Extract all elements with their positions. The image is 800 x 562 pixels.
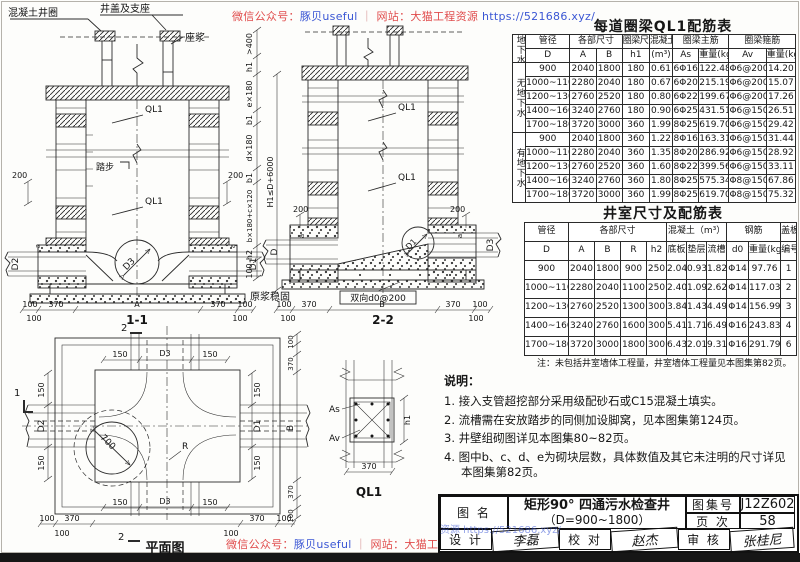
table-cell: 0.80	[649, 91, 672, 105]
table-cell: 2280	[569, 280, 595, 299]
dim-150: 150	[202, 498, 217, 507]
dim-100: 100	[26, 314, 41, 323]
table-cell: 2040	[570, 63, 596, 77]
table-cell: 3720	[569, 337, 595, 356]
table-cell: 0.61	[649, 63, 672, 77]
table-cell: Φ6@200	[729, 77, 766, 91]
table-cell: 3240	[570, 105, 596, 119]
table-row: 有地下水900204018003601.228Φ16163.31Φ6@15031…	[513, 133, 796, 147]
table-cell: Φ8@150	[729, 189, 766, 203]
dim-370: 370	[249, 514, 264, 523]
table-cell: 1.99	[649, 119, 672, 133]
dim-200: 200	[228, 171, 243, 180]
table-cell: 3000	[596, 119, 622, 133]
table-cell: 9.31	[707, 337, 727, 356]
table-cell: 2760	[570, 91, 596, 105]
table-cell: 2.04	[667, 261, 687, 280]
table-cell: 360	[622, 133, 649, 147]
dim-100: 100	[54, 529, 69, 538]
table-cell: 26.51	[766, 105, 795, 119]
table-cell: 3240	[570, 175, 596, 189]
chamber-table-note: 注：未包括井室墙体工程量，井室墙体工程量见本图集第82页。	[537, 356, 791, 369]
table-cell: Φ14	[727, 261, 749, 280]
dim-h1: h1	[403, 415, 412, 425]
table-cell: 1800	[596, 63, 622, 77]
table-cell: 3720	[570, 189, 596, 203]
table-cell: 180	[622, 63, 649, 77]
table-cell: 8Φ22	[673, 161, 699, 175]
dim-d180: d×180	[245, 134, 254, 161]
header-cushion: 垫层	[687, 242, 707, 261]
header-As: As	[673, 49, 699, 63]
table-cell: 有地下水	[513, 133, 526, 203]
header-D: D	[526, 49, 570, 63]
header-B: B	[596, 49, 622, 63]
table-cell: 360	[622, 147, 649, 161]
label-ql1: QL1	[398, 103, 416, 113]
table-cell: 2760	[596, 175, 622, 189]
watermark-fragment: 资源 https://521686.xyz/	[440, 521, 561, 536]
header-R: R	[621, 242, 647, 261]
label-ql1: QL1	[145, 197, 163, 207]
table-row: 1000~1100228020403601.358Φ20286.92Φ6@150…	[513, 147, 796, 161]
header-ring-beam-size: 圈梁尺寸	[622, 35, 649, 49]
table-cell: 97.76	[749, 261, 781, 280]
table-cell: 2760	[570, 161, 596, 175]
dim-100: 100	[276, 514, 291, 523]
dim-100: 100	[472, 300, 487, 309]
table-cell: Φ6@150	[729, 147, 766, 161]
watermark-site-name: 大猫工程资源	[410, 10, 478, 23]
dim-370: 370	[301, 300, 316, 309]
table-cell: 360	[622, 175, 649, 189]
table-cell: 163.31	[699, 133, 729, 147]
dim-a: a	[456, 234, 464, 238]
header-D: D	[525, 242, 569, 261]
label-av-stirrup: Av	[329, 434, 341, 444]
table-cell: 2.62	[707, 280, 727, 299]
section-marker-1: 1	[14, 388, 20, 399]
dim-150: 150	[253, 382, 262, 397]
table-cell: 360	[622, 119, 649, 133]
check-signature: 赵杰	[610, 527, 678, 553]
table-header-row: 管径 各部尺寸 混凝土（m³） 钢筋 盖板	[525, 223, 797, 242]
watermark-site-label: 网站：	[371, 538, 405, 551]
watermark-wechat-label: 微信公众号：	[226, 538, 294, 551]
plan-view-drawing: 2 150 D3 150 150 D2 150 150	[14, 323, 310, 556]
table-cell: Φ6@150	[729, 133, 766, 147]
dim-100: 100	[276, 300, 291, 309]
table-cell: 6.49	[707, 318, 727, 337]
table-cell: 1.60	[649, 161, 672, 175]
table-cell: Φ6@200	[729, 63, 766, 77]
table-cell: 900	[526, 63, 570, 77]
table-cell: 2040	[596, 147, 622, 161]
table-cell: 1400~1600	[526, 175, 570, 189]
header-flow-channel: 流槽	[707, 242, 727, 261]
table-cell: 8Φ20	[673, 147, 699, 161]
section-1-1-drawing: 混凝土井圈 井盖及支座 座浆 QL1 QL1	[5, 2, 265, 327]
header-concrete: 混凝土（m³）	[667, 223, 727, 242]
note-item: 2. 流槽需在安放踏步的同侧加设脚窝，见本图集第124页。	[444, 413, 796, 429]
dim-100: 100	[232, 314, 247, 323]
scan-edge-bar	[0, 553, 800, 562]
header-weight: 重量(kg)	[699, 49, 729, 63]
dim-b180-c120: b×180+c×120	[246, 190, 254, 243]
table-cell: 1000~1100	[526, 77, 570, 91]
table-cell: 156.99	[749, 299, 781, 318]
table-cell: Φ16	[727, 337, 749, 356]
table-cell: 3000	[596, 189, 622, 203]
table-cell: 6.43	[667, 337, 687, 356]
table-cell: 3000	[595, 337, 621, 356]
table-cell: 1300	[621, 299, 647, 318]
dim-150: 150	[37, 455, 46, 470]
table-cell: Φ6@200	[729, 91, 766, 105]
table-cell: 3720	[570, 119, 596, 133]
table-cell: 180	[622, 105, 649, 119]
note-item: 3. 井壁组砌图详见本图集80~82页。	[444, 431, 796, 447]
notes-title: 说明：	[444, 372, 796, 389]
label-biaxial-rebar: 双向d0@200	[350, 292, 406, 304]
table-cell: 29.42	[766, 119, 795, 133]
label-steps: 踏步	[96, 161, 114, 173]
atlas-number-value: J12Z602	[740, 496, 795, 513]
label-concrete-ring: 混凝土井圈	[8, 6, 58, 19]
table-cell: 300	[647, 337, 667, 356]
chamber-table: 管径 各部尺寸 混凝土（m³） 钢筋 盖板 D A B R h2 底板 垫层 流…	[524, 222, 797, 356]
chamber-table-body: 管径 各部尺寸 混凝土（m³） 钢筋 盖板 D A B R h2 底板 垫层 流…	[525, 223, 797, 356]
table-row: 1200~13002760252013003003.841.434.49Φ141…	[525, 299, 797, 318]
table-cell: 2	[781, 280, 797, 299]
table-cell: 6	[781, 337, 797, 356]
header-h2: h2	[647, 242, 667, 261]
header-dimensions: 各部尺寸	[569, 223, 667, 242]
table-cell: 619.70	[699, 119, 729, 133]
table-cell: 117.03	[749, 280, 781, 299]
table-row: 无地下水900204018001800.616Φ16122.48Φ6@20014…	[513, 63, 796, 77]
dim-370: 370	[445, 300, 460, 309]
dim-100: 100	[39, 514, 54, 523]
table-row: 1400~16003240276016003005.411.716.49Φ162…	[525, 318, 797, 337]
header-B: B	[595, 242, 621, 261]
table-cell: 2.01	[687, 337, 707, 356]
table-row: 1400~1600324027603601.808Φ25575.34Φ8@150…	[513, 175, 796, 189]
watermark-wechat-label: 微信公众号：	[232, 10, 300, 23]
table-cell: 619.70	[699, 189, 729, 203]
table-cell: 6Φ22	[673, 91, 699, 105]
label-pipe-d2: D2	[11, 258, 21, 271]
table-cell: 900	[621, 261, 647, 280]
table-cell: 1800	[595, 261, 621, 280]
table-cell: 1200~1300	[526, 91, 570, 105]
table-cell: 3.84	[667, 299, 687, 318]
header-m3: (m³)	[649, 49, 672, 63]
header-steel: 钢筋	[727, 223, 781, 242]
dim-b1: b1	[245, 173, 254, 183]
table-cell: 75.32	[766, 189, 795, 203]
notes-section: 说明： 1. 接入支管超挖部分采用级配砂石或C15混凝土填实。2. 流槽需在安放…	[444, 372, 796, 484]
table-cell: 1100	[621, 280, 647, 299]
watermark-site-label: 网站：	[377, 10, 411, 23]
table-cell: 1700~1800	[525, 337, 569, 356]
table-cell: 1.09	[687, 280, 707, 299]
label-seat-mortar: 座浆	[185, 31, 205, 44]
table-cell: 215.19	[699, 77, 729, 91]
dim-370: 370	[287, 357, 295, 370]
table-cell: 2520	[595, 299, 621, 318]
dim-150: 150	[112, 350, 127, 359]
table-cell: 900	[525, 261, 569, 280]
dim-200: 200	[450, 205, 465, 214]
page-number-label: 页 次	[686, 513, 740, 529]
header-concrete: 混凝土	[649, 35, 672, 49]
table-header-row: 地下水 管径 各部尺寸 圈梁尺寸 混凝土 圈梁主筋 圈梁箍筋	[513, 35, 796, 49]
table-cell: 1800	[596, 133, 622, 147]
table-cell: 1200~1300	[526, 161, 570, 175]
dim-B: B	[379, 300, 385, 309]
header-pipe-diameter: 管径	[526, 35, 570, 49]
label-pipe-d3: D3	[486, 239, 496, 252]
dim-150: 150	[202, 350, 217, 359]
dim-150: 150	[37, 382, 46, 397]
ql1-detail-drawing: As Av h1 370 QL1	[329, 360, 412, 499]
header-stirrup: 圈梁箍筋	[729, 35, 796, 49]
table-cell: 300	[647, 299, 667, 318]
table-cell: Φ14	[727, 299, 749, 318]
table-cell: Φ8@150	[729, 175, 766, 189]
header-d0: d0	[727, 242, 749, 261]
table-cell: 2760	[595, 318, 621, 337]
note-item: 1. 接入支管超挖部分采用级配砂石或C15混凝土填实。	[444, 394, 796, 410]
table-cell: 8Φ25	[673, 175, 699, 189]
dim-100: 100	[245, 263, 254, 278]
table-cell: 1400~1600	[526, 105, 570, 119]
header-dimensions: 各部尺寸	[570, 35, 622, 49]
ring-beam-table-body: 地下水 管径 各部尺寸 圈梁尺寸 混凝土 圈梁主筋 圈梁箍筋 D A B h1 …	[513, 35, 796, 203]
dim-150: 150	[112, 498, 127, 507]
header-main-rebar: 圈梁主筋	[673, 35, 729, 49]
table-cell: 17.26	[766, 91, 795, 105]
dim-370: 370	[48, 300, 63, 309]
table-cell: 199.67	[699, 91, 729, 105]
table-subheader-row: D A B h1 (m³) As 重量(kg) Av 重量(kg)	[513, 49, 796, 63]
table-cell: 399.56	[699, 161, 729, 175]
table-cell: 300	[647, 318, 667, 337]
table-cell: 1700~1800	[526, 119, 570, 133]
table-row: 1200~1300276025203601.608Φ22399.56Φ6@150…	[513, 161, 796, 175]
label-ql1: QL1	[398, 173, 416, 183]
table-cell: Φ6@150	[729, 119, 766, 133]
table-cell: 2760	[569, 299, 595, 318]
table-cell: 1400~1600	[525, 318, 569, 337]
dim-370: 370	[287, 485, 295, 498]
table-cell: 无地下水	[513, 63, 526, 133]
table-cell: 2040	[596, 77, 622, 91]
table-cell: 431.51	[699, 105, 729, 119]
table-cell: 1.71	[687, 318, 707, 337]
table-cell: 31.44	[766, 133, 795, 147]
table-row: 1000~11002280204011002502.401.092.62Φ141…	[525, 280, 797, 299]
label-ql1: QL1	[145, 105, 163, 115]
label-pipe-d3: D3	[122, 257, 138, 273]
section-marker-2: 2	[118, 532, 124, 543]
table-cell: 900	[526, 133, 570, 147]
table-cell: 0.90	[649, 105, 672, 119]
table-cell: 1.82	[707, 261, 727, 280]
table-cell: Φ14	[727, 280, 749, 299]
drawing-title: 矩形90° 四通污水检查井	[524, 498, 670, 514]
ql1-detail-title: QL1	[356, 485, 382, 499]
table-cell: 3	[781, 299, 797, 318]
table-cell: 180	[622, 91, 649, 105]
table-cell: Φ6@150	[729, 105, 766, 119]
label-cover-support: 井盖及支座	[100, 2, 150, 15]
table-cell: 2280	[570, 77, 596, 91]
watermark-top: 微信公众号：豚贝useful ｜ 网站：大猫工程资源 https://52168…	[232, 8, 595, 24]
watermark-wechat-name: 豚贝useful	[300, 10, 358, 23]
dim-H1: H1≤D+6000	[266, 156, 275, 207]
note-item: 4. 图中b、c、d、e为砌块层数，具体数值及其它未注明的尺寸详见本图集第82页…	[444, 450, 796, 481]
chamber-table-title: 井室尺寸及配筋表	[533, 203, 793, 223]
table-cell: 0.67	[649, 77, 672, 91]
label-radius-R: R	[182, 442, 188, 452]
label-pipe-d3: D3	[159, 497, 170, 506]
table-cell: 1.35	[649, 147, 672, 161]
table-cell: 1.22	[649, 133, 672, 147]
table-cell: 575.34	[699, 175, 729, 189]
label-as-rebar: As	[329, 405, 340, 415]
table-cell: 1.43	[687, 299, 707, 318]
header-cover-plate: 盖板	[781, 223, 797, 242]
dim-370: 370	[361, 462, 376, 471]
table-cell: 8Φ25	[673, 119, 699, 133]
section-2-2-drawing: QL1 QL1 200 200 a a D D3 D	[250, 26, 501, 327]
table-cell: 1000~1100	[525, 280, 569, 299]
header-groundwater: 地下水	[513, 35, 526, 63]
drawing-area: 混凝土井圈 井盖及支座 座浆 QL1 QL1	[0, 0, 515, 562]
table-row: 1400~1600324027601800.906Φ25431.51Φ6@150…	[513, 105, 796, 119]
table-row: 1200~1300276025201800.806Φ22199.67Φ6@200…	[513, 91, 796, 105]
dim-h2: h2	[245, 250, 254, 260]
table-cell: 2040	[595, 280, 621, 299]
table-cell: 2760	[596, 105, 622, 119]
table-cell: 2280	[570, 147, 596, 161]
table-cell: 2520	[596, 91, 622, 105]
watermark-url[interactable]: https://521686.xyz/	[482, 10, 595, 23]
table-cell: 8Φ25	[673, 189, 699, 203]
header-pipe-diameter: 管径	[525, 223, 569, 242]
table-cell: 180	[622, 77, 649, 91]
table-row: 1700~1800372030003601.998Φ25619.70Φ8@150…	[513, 189, 796, 203]
table-cell: 33.11	[766, 161, 795, 175]
table-cell: Φ6@150	[729, 161, 766, 175]
table-cell: 1	[781, 261, 797, 280]
table-cell: 2.40	[667, 280, 687, 299]
dim-370: 370	[210, 300, 225, 309]
table-cell: 122.48	[699, 63, 729, 77]
header-h1: h1	[622, 49, 649, 63]
table-cell: 4.49	[707, 299, 727, 318]
dim-100: 100	[22, 300, 37, 309]
table-cell: 1.80	[649, 175, 672, 189]
table-cell: 1600	[621, 318, 647, 337]
table-cell: 2040	[569, 261, 595, 280]
table-cell: 14.20	[766, 63, 795, 77]
notes-list: 1. 接入支管超挖部分采用级配砂石或C15混凝土填实。2. 流槽需在安放踏步的同…	[444, 394, 796, 481]
table-cell: 15.07	[766, 77, 795, 91]
table-row: 1700~18003720300018003006.432.019.31Φ162…	[525, 337, 797, 356]
table-cell: 6Φ20	[673, 77, 699, 91]
table-cell: 2040	[570, 133, 596, 147]
table-cell: 67.86	[766, 175, 795, 189]
section-1-1-title: 1-1	[126, 313, 148, 327]
watermark-separator: ｜	[355, 538, 366, 551]
dim-A: A	[134, 300, 140, 309]
section-marker-2: 2	[121, 323, 127, 334]
atlas-number-label: 图集号	[686, 496, 740, 513]
header-weight: 重量(kg)	[766, 49, 795, 63]
dim-150: 150	[253, 455, 262, 470]
dim-370: 370	[64, 514, 79, 523]
watermark-separator: ｜	[361, 10, 372, 23]
dim-100: 100	[280, 314, 295, 323]
table-row: 1700~1800372030003601.998Φ25619.70Φ6@150…	[513, 119, 796, 133]
table-cell: 28.92	[766, 147, 795, 161]
table-cell: 6Φ25	[673, 105, 699, 119]
table-cell: 1700~1800	[526, 189, 570, 203]
dim-100: 100	[287, 335, 295, 348]
dim-100: 100	[468, 314, 483, 323]
header-weight: 重量(kg)	[749, 242, 781, 261]
dim-b1: b1	[245, 115, 254, 125]
table-cell: 1200~1300	[525, 299, 569, 318]
table-cell: 250	[647, 261, 667, 280]
table-subheader-row: D A B R h2 底板 垫层 流槽 d0 重量(kg) 编号	[525, 242, 797, 261]
watermark-wechat-name: 豚贝useful	[294, 538, 352, 551]
review-signature: 张桂尼	[729, 527, 794, 552]
dim-h1: h1	[245, 62, 254, 72]
table-cell: 1000~1100	[526, 147, 570, 161]
table-row: 900204018009002502.040.931.82Φ1497.761	[525, 261, 797, 280]
table-cell: 286.92	[699, 147, 729, 161]
dim-gt400: >400	[245, 33, 254, 55]
section-2-2-title: 2-2	[372, 313, 394, 327]
table-cell: 360	[622, 189, 649, 203]
table-cell: 360	[622, 161, 649, 175]
table-cell: 1800	[621, 337, 647, 356]
table-cell: Φ16	[727, 318, 749, 337]
label-pipe-d3: D3	[159, 349, 170, 358]
dim-e180: e×180	[245, 81, 254, 108]
table-cell: 291.79	[749, 337, 781, 356]
review-label: 审 核	[678, 529, 730, 550]
table-cell: 2520	[596, 161, 622, 175]
table-cell: 0.93	[687, 261, 707, 280]
label-pipe-d: D	[270, 248, 280, 255]
table-row: 1000~1100228020401800.676Φ20215.19Φ6@200…	[513, 77, 796, 91]
header-A: A	[569, 242, 595, 261]
table-cell: 243.83	[749, 318, 781, 337]
header-A: A	[570, 49, 596, 63]
table-cell: 4	[781, 318, 797, 337]
dim-200: 200	[293, 205, 308, 214]
table-cell: 5.41	[667, 318, 687, 337]
atlas-sheet: 混凝土井圈 井盖及支座 座浆 QL1 QL1	[0, 0, 800, 562]
ring-beam-table: 地下水 管径 各部尺寸 圈梁尺寸 混凝土 圈梁主筋 圈梁箍筋 D A B h1 …	[512, 34, 796, 203]
header-base-slab: 底板	[667, 242, 687, 261]
header-Av: Av	[729, 49, 766, 63]
